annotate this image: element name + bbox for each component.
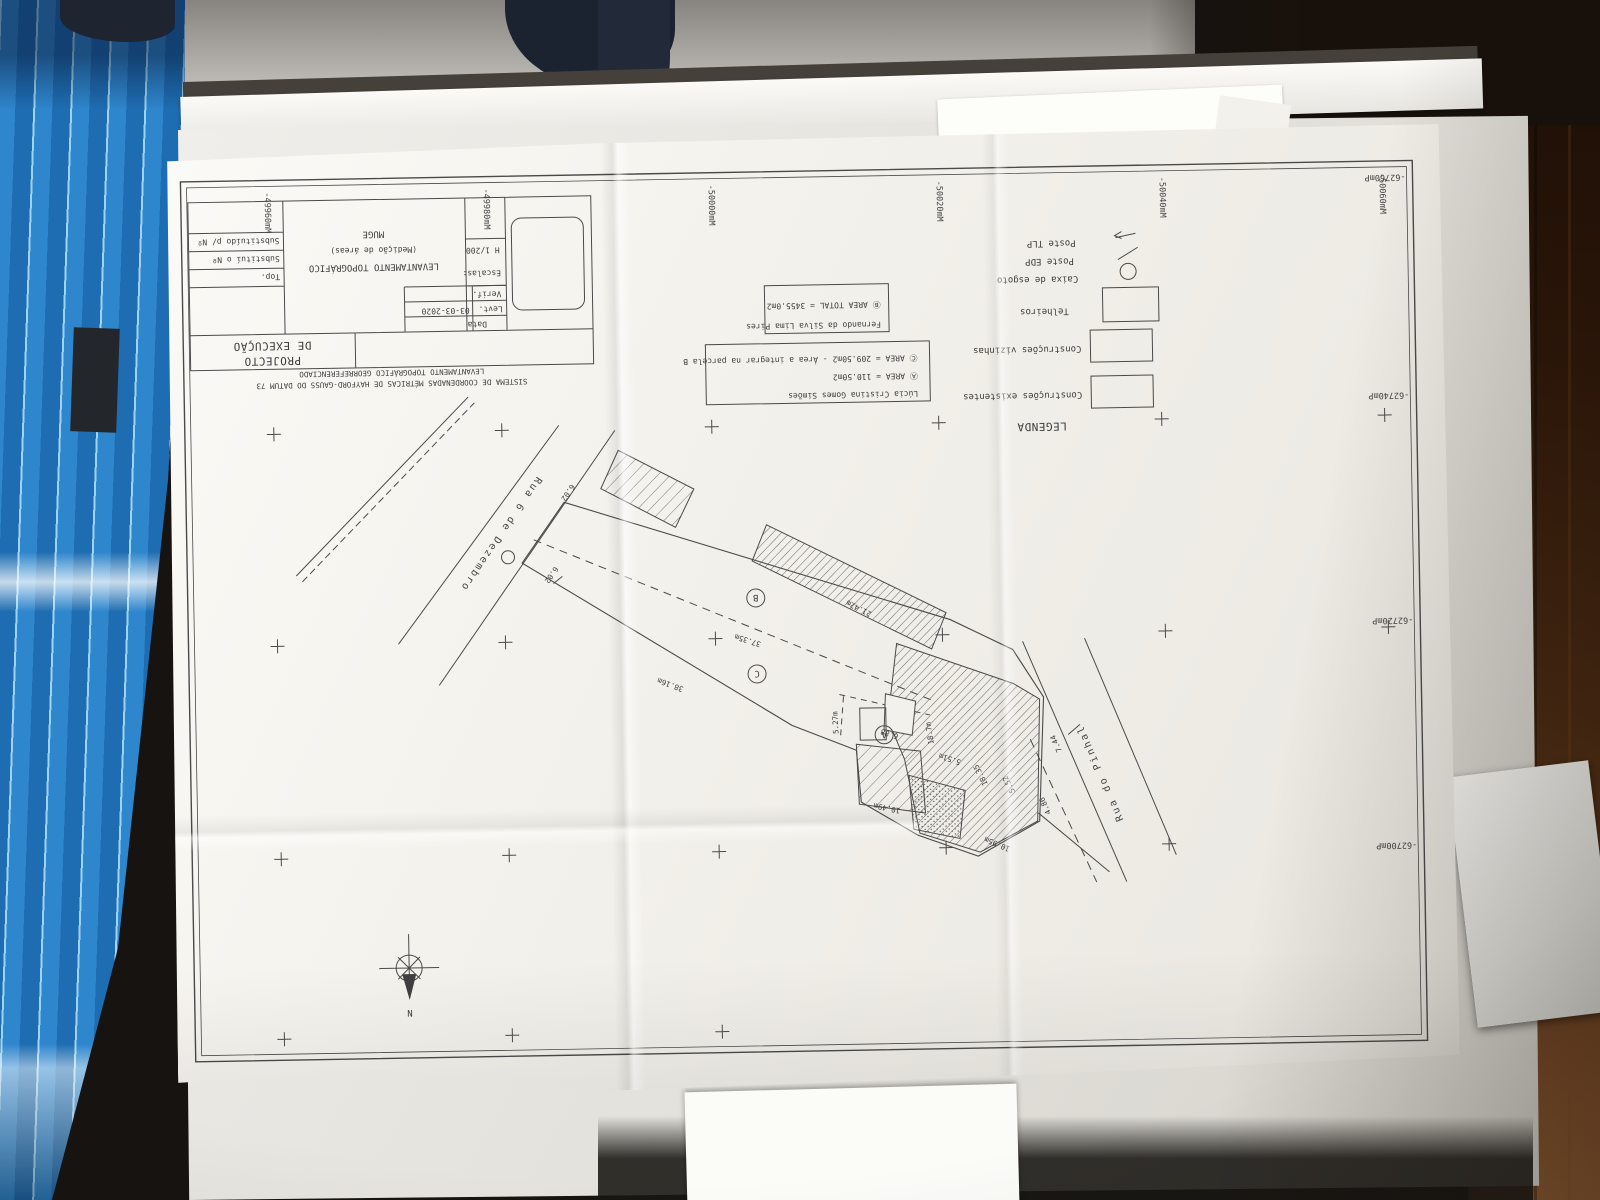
title-block: PROJECTO DE EXECUÇÃO LEVANTAMENTO TOPOGR… xyxy=(188,196,594,392)
photo-scene: -49960mM -49980mM -50000mM -50020mM -500… xyxy=(0,0,1600,1200)
area-a: Ⓐ AREA = 110.50m2 xyxy=(833,371,918,381)
survey-subtitle: (Medição de áreas) xyxy=(330,245,417,256)
survey-plan-sheet: -49960mM -49980mM -50000mM -50020mM -500… xyxy=(162,124,1460,1098)
scale-value: H 1/200 xyxy=(466,245,500,255)
legend-label: Poste TLP xyxy=(1026,237,1076,248)
manhole-on-plan xyxy=(501,551,514,564)
northing-label: -62740mP xyxy=(1368,390,1409,401)
survey-title: LEVANTAMENTO TOPOGRÁFICO xyxy=(309,260,439,274)
area-total-b: Ⓑ AREA TOTAL = 3455.0m2 xyxy=(766,300,880,311)
survey-location: MUGE xyxy=(362,228,384,238)
date-label: Data xyxy=(467,320,487,329)
levt-label: Levt. xyxy=(479,304,503,313)
dimension: 37.35m xyxy=(733,632,762,649)
easting-label: -49980mM xyxy=(481,189,492,230)
legend-title: LEGENDA xyxy=(1017,420,1067,434)
legend-label: Poste EDP xyxy=(1024,255,1074,266)
parcel-label-b: B xyxy=(753,592,759,602)
verif-label: Verif. xyxy=(472,289,501,299)
drawing-frame xyxy=(180,160,1427,1061)
project-label: PROJECTO xyxy=(244,354,301,368)
project-label-2: DE EXECUÇÃO xyxy=(233,339,312,353)
street-name-rua-do-pinhal: Rua do Pinhal xyxy=(1075,723,1127,823)
building-long-hatched xyxy=(751,522,946,652)
buildings xyxy=(600,443,1042,859)
levt-date: 03-03-2020 xyxy=(421,306,469,316)
parcel-label-c: C xyxy=(754,668,760,678)
legend-label: Construções existentes xyxy=(963,389,1082,401)
legend-swatch-telheiros xyxy=(1102,287,1159,322)
easting-label: -50020mM xyxy=(934,181,945,222)
area-c: Ⓒ AREA = 209.50m2 - Área a integrar na p… xyxy=(683,353,918,368)
street-name-rua-6-dezembro: Rua 6 de Dezembro xyxy=(458,474,544,593)
legend-label: Telheiros xyxy=(1020,305,1069,316)
top-label: Top. xyxy=(261,272,280,281)
legend-swatch-existentes xyxy=(1091,375,1154,408)
legend-pole-edp-icon xyxy=(1118,247,1138,259)
tile-dark-patch xyxy=(70,327,120,433)
substituido-label: Substituído p/ Nº xyxy=(198,236,280,246)
northing-label: -62720mP xyxy=(1372,614,1413,625)
northing-label: -62700mP xyxy=(1376,839,1417,850)
georef-line2: SISTEMA DE COORDENADAS MÉTRICAS DE HAYFO… xyxy=(256,377,527,391)
owner-area-boxes: Ⓑ AREA TOTAL = 3455.0m2 Fernando da Silv… xyxy=(682,283,931,405)
owner-name-lucia: Lúcia Cristina Gomes Simões xyxy=(788,389,918,400)
dimension: 5.27m xyxy=(830,711,840,735)
legend-swatch-vizinhas xyxy=(1090,329,1153,362)
paper-scrap-bottom xyxy=(684,1084,1019,1200)
easting-label: -49960mM xyxy=(262,192,273,233)
scale-label: Escalas: xyxy=(462,268,501,278)
easting-label: -50040mM xyxy=(1156,177,1167,218)
legend-pole-tlp-icon xyxy=(1114,231,1135,238)
legend-manhole-circle xyxy=(1120,263,1136,279)
dimension: 6.02 xyxy=(559,483,577,503)
dimension: 6.02 xyxy=(543,565,561,585)
easting-label: -50000mM xyxy=(706,185,717,226)
substitui-label: Substituí o Nº xyxy=(212,254,280,264)
dimension: 7.44 xyxy=(1048,733,1064,754)
dimension: 38.16m xyxy=(656,676,685,694)
owner-name-fernando: Fernando da Silva Lima Pires xyxy=(746,320,881,331)
northing-label: -62760mP xyxy=(1364,172,1405,183)
